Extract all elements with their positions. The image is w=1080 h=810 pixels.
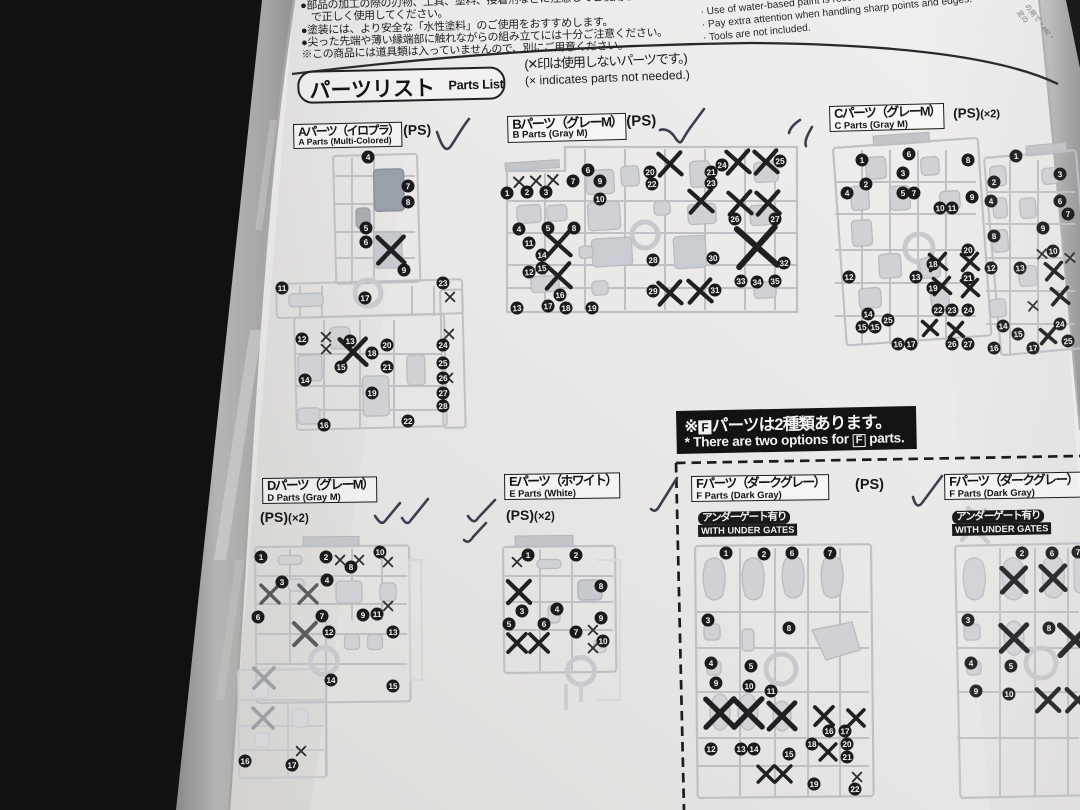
svg-text:10: 10 <box>1004 690 1014 699</box>
svg-text:29: 29 <box>648 287 658 297</box>
svg-text:4: 4 <box>366 153 371 162</box>
svg-text:2: 2 <box>1020 549 1025 558</box>
svg-text:1: 1 <box>526 551 531 560</box>
svg-text:15: 15 <box>857 323 867 333</box>
svg-text:19: 19 <box>587 304 597 314</box>
svg-text:5: 5 <box>507 620 512 629</box>
svg-text:31: 31 <box>710 286 720 296</box>
svg-text:9: 9 <box>599 614 604 623</box>
svg-text:8: 8 <box>599 582 604 591</box>
svg-text:16: 16 <box>240 757 250 766</box>
svg-text:30: 30 <box>708 254 718 264</box>
svg-text:11: 11 <box>767 687 776 696</box>
svg-text:5: 5 <box>364 224 369 233</box>
svg-text:22: 22 <box>403 417 413 426</box>
svg-text:19: 19 <box>809 780 819 789</box>
svg-text:23: 23 <box>947 306 957 316</box>
svg-text:15: 15 <box>336 363 346 372</box>
svg-text:20: 20 <box>842 740 852 749</box>
svg-text:9: 9 <box>714 679 719 688</box>
svg-text:23: 23 <box>706 179 716 189</box>
svg-text:12: 12 <box>844 273 854 283</box>
svg-text:25: 25 <box>1063 337 1073 347</box>
svg-text:25: 25 <box>883 316 893 326</box>
svg-text:10: 10 <box>598 637 608 646</box>
svg-text:18: 18 <box>367 349 377 358</box>
svg-text:22: 22 <box>933 306 943 316</box>
svg-text:13: 13 <box>1015 264 1025 274</box>
svg-text:11: 11 <box>524 239 534 249</box>
svg-text:4: 4 <box>709 659 714 668</box>
svg-text:15: 15 <box>784 750 794 759</box>
svg-text:23: 23 <box>438 279 448 288</box>
svg-text:4: 4 <box>969 659 974 668</box>
svg-text:18: 18 <box>807 740 817 749</box>
svg-text:2: 2 <box>762 550 767 559</box>
svg-text:28: 28 <box>648 256 658 266</box>
svg-text:18: 18 <box>928 260 938 270</box>
svg-text:18: 18 <box>561 304 571 314</box>
svg-text:27: 27 <box>438 389 448 398</box>
svg-text:14: 14 <box>300 376 310 385</box>
svg-text:3: 3 <box>706 616 711 625</box>
svg-text:25: 25 <box>775 157 785 167</box>
svg-text:9: 9 <box>402 266 407 275</box>
svg-text:27: 27 <box>770 215 780 225</box>
svg-text:14: 14 <box>749 745 759 754</box>
svg-text:1: 1 <box>259 553 264 562</box>
svg-text:13: 13 <box>345 337 355 346</box>
svg-text:13: 13 <box>388 628 398 637</box>
svg-text:20: 20 <box>645 168 655 178</box>
svg-text:5: 5 <box>1009 662 1014 671</box>
svg-text:17: 17 <box>360 294 370 303</box>
svg-text:6: 6 <box>256 613 261 622</box>
svg-text:8: 8 <box>349 563 354 572</box>
svg-text:12: 12 <box>297 335 307 344</box>
svg-text:13: 13 <box>911 273 921 283</box>
svg-text:10: 10 <box>595 195 605 205</box>
svg-text:28: 28 <box>438 402 448 411</box>
svg-text:8: 8 <box>787 624 792 633</box>
svg-text:5: 5 <box>749 662 754 671</box>
svg-text:25: 25 <box>438 359 448 368</box>
svg-text:11: 11 <box>278 284 287 293</box>
svg-text:20: 20 <box>963 246 973 256</box>
svg-text:20: 20 <box>382 341 392 350</box>
svg-text:3: 3 <box>520 607 525 616</box>
svg-text:7: 7 <box>1076 548 1080 557</box>
svg-text:24: 24 <box>963 306 973 316</box>
svg-text:6: 6 <box>542 620 547 629</box>
svg-text:10: 10 <box>744 682 754 691</box>
svg-text:33: 33 <box>736 277 746 287</box>
svg-text:35: 35 <box>770 277 780 287</box>
svg-text:27: 27 <box>963 340 973 350</box>
svg-text:26: 26 <box>438 374 448 383</box>
svg-text:10: 10 <box>1048 247 1058 257</box>
svg-text:21: 21 <box>382 363 392 372</box>
svg-text:24: 24 <box>1055 320 1065 330</box>
svg-text:24: 24 <box>717 161 727 171</box>
svg-text:17: 17 <box>840 727 850 736</box>
svg-text:3: 3 <box>966 616 971 625</box>
svg-text:11: 11 <box>947 204 957 214</box>
svg-text:6: 6 <box>1050 549 1055 558</box>
svg-text:3: 3 <box>280 578 285 587</box>
svg-text:13: 13 <box>512 304 522 314</box>
svg-text:7: 7 <box>406 182 411 191</box>
svg-text:7: 7 <box>320 612 325 621</box>
svg-text:15: 15 <box>388 682 398 691</box>
svg-text:12: 12 <box>706 745 716 754</box>
svg-text:16: 16 <box>824 727 834 736</box>
svg-text:24: 24 <box>438 341 448 350</box>
svg-text:21: 21 <box>706 168 716 178</box>
svg-text:16: 16 <box>893 340 903 350</box>
svg-text:14: 14 <box>863 310 873 320</box>
svg-text:34: 34 <box>752 278 762 288</box>
svg-text:26: 26 <box>730 215 740 225</box>
svg-text:17: 17 <box>543 302 553 312</box>
svg-text:6: 6 <box>364 238 369 247</box>
svg-text:11: 11 <box>373 610 382 619</box>
svg-text:17: 17 <box>1028 344 1038 354</box>
svg-text:14: 14 <box>537 251 547 261</box>
svg-text:12: 12 <box>324 628 334 637</box>
svg-text:19: 19 <box>928 284 938 294</box>
svg-text:15: 15 <box>537 264 547 274</box>
svg-text:21: 21 <box>842 753 852 762</box>
svg-text:15: 15 <box>1013 330 1023 340</box>
svg-text:13: 13 <box>736 745 746 754</box>
svg-text:2: 2 <box>574 551 579 560</box>
svg-text:9: 9 <box>361 611 366 620</box>
svg-text:16: 16 <box>555 291 565 301</box>
svg-text:15: 15 <box>870 323 880 333</box>
svg-text:7: 7 <box>574 628 579 637</box>
svg-text:12: 12 <box>524 268 534 278</box>
svg-text:12: 12 <box>986 264 996 274</box>
svg-text:16: 16 <box>989 344 999 354</box>
svg-text:4: 4 <box>325 576 330 585</box>
svg-text:14: 14 <box>326 676 336 685</box>
svg-text:17: 17 <box>906 340 916 350</box>
svg-text:7: 7 <box>828 549 833 558</box>
svg-text:4: 4 <box>555 605 560 614</box>
svg-text:10: 10 <box>375 548 385 557</box>
svg-text:26: 26 <box>947 340 957 350</box>
svg-text:19: 19 <box>367 389 377 398</box>
svg-text:9: 9 <box>974 687 979 696</box>
svg-text:16: 16 <box>319 421 329 430</box>
svg-text:2: 2 <box>324 553 329 562</box>
svg-text:1: 1 <box>724 549 729 558</box>
svg-text:10: 10 <box>935 204 945 214</box>
svg-text:22: 22 <box>850 785 860 794</box>
svg-text:8: 8 <box>1047 624 1052 633</box>
svg-text:8: 8 <box>406 198 411 207</box>
svg-text:32: 32 <box>779 259 789 269</box>
svg-text:6: 6 <box>790 549 795 558</box>
svg-text:14: 14 <box>998 322 1008 332</box>
svg-text:21: 21 <box>963 274 973 284</box>
svg-text:17: 17 <box>287 761 297 770</box>
svg-text:22: 22 <box>647 180 657 190</box>
